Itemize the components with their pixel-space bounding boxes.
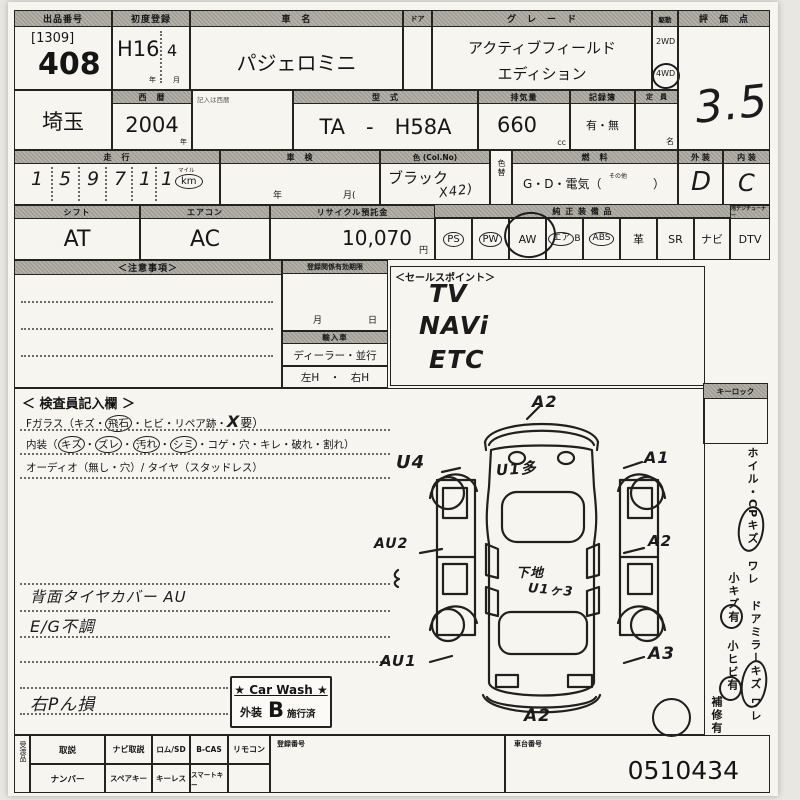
- interior-line: 内装（キズ・ズレ・汚れ・シミ・コゲ・穴・キレ・破れ・割れ）: [26, 436, 355, 453]
- dotted-line: [20, 429, 390, 431]
- digit-divider: [105, 167, 107, 201]
- ps-circled: PS: [443, 232, 463, 247]
- dotted-line: [20, 687, 228, 689]
- year-header: 西 暦: [113, 91, 191, 104]
- mileage-header: 走 行: [15, 151, 219, 164]
- grade-line1: アクティブフィールド: [433, 35, 651, 59]
- shift-cell: シフト AT: [14, 205, 140, 260]
- drive-4wd-circle-mark: [651, 62, 682, 91]
- car-wash-suffix: 施行済: [287, 706, 316, 720]
- color-value: ブラック: [388, 167, 448, 188]
- dotted-line: [20, 583, 390, 585]
- inspector-area-title: ＜ 検査員記入欄 ＞: [22, 393, 135, 412]
- first-registration-cell: 初度登録 H16 4 年 月: [112, 10, 190, 90]
- interior-item: コゲ: [208, 439, 229, 451]
- mileage-digit: 5: [59, 168, 72, 190]
- damage-annotation: A1: [644, 448, 670, 467]
- interior-item: 穴: [239, 439, 250, 451]
- interior-close: ）: [344, 439, 355, 451]
- color-code-handwritten: X42): [438, 182, 474, 202]
- dtv-label: DTV: [731, 222, 769, 256]
- shaken-header: 車 検: [221, 151, 379, 164]
- caution-cell: ＜注意事項＞: [14, 260, 282, 388]
- fuel-cell: 燃 料 G・D・電気（ その他 ）: [512, 150, 678, 205]
- car-wash-stamp: ★ Car Wash ★ 外装 B 施行済: [230, 676, 332, 728]
- score-cell: 評 価 点 3.5: [678, 10, 770, 150]
- damage-annotation: A2: [524, 706, 551, 726]
- interior-item-circled: ズレ: [94, 435, 122, 454]
- damage-annotation: U1多: [495, 457, 537, 481]
- fuel-close-paren: ）: [653, 175, 665, 192]
- color-change-cell: 色替: [490, 150, 512, 205]
- capacity-cell: 定 員 名: [635, 90, 678, 150]
- import-value: ディーラー・並行: [283, 345, 387, 365]
- dotted-line: [20, 713, 228, 715]
- interior-header: 内 装: [724, 151, 769, 164]
- mileage-digit: 7: [114, 168, 127, 190]
- mileage-digit: 1: [161, 168, 174, 190]
- damage-annotation: A3: [648, 644, 675, 664]
- mileage-digit: 1: [139, 168, 152, 190]
- sidebar-pen-circle: [720, 604, 743, 629]
- handle-value: 左H ・ 右H: [283, 367, 387, 387]
- model-code: TA - H58A: [294, 107, 477, 145]
- first-registration-month: 4: [167, 41, 177, 60]
- digit-divider: [51, 167, 53, 201]
- damage-annotation: AU1: [380, 652, 417, 670]
- year-unit: 年: [180, 137, 187, 147]
- sidebar-repair: 補修有: [708, 696, 724, 735]
- interior-item: 破れ: [292, 439, 313, 451]
- interior-prefix: 内装（: [26, 439, 58, 451]
- key-lock-header: キーロック: [704, 384, 767, 399]
- separator: ・: [160, 439, 171, 451]
- leather-label: 革: [633, 231, 644, 247]
- shaken-month-unit: 月(: [343, 188, 356, 201]
- color-header: 色 (Col.No): [381, 151, 489, 164]
- separator: ・: [313, 439, 324, 451]
- separator: ・: [250, 439, 261, 451]
- sidebar-pen-circle: [719, 676, 742, 701]
- mileage-cell: 走 行 1 5 9 7 1 1 マイル km: [14, 150, 220, 205]
- exterior-grade-cell: 外 装 D: [678, 150, 723, 205]
- exterior-header: 外 装: [679, 151, 722, 164]
- interior-item-circled: キズ: [57, 435, 85, 454]
- separator: ・: [85, 439, 96, 451]
- interior-grade-handwritten: C: [738, 169, 756, 197]
- inspector-note-2: E/G不調: [30, 613, 95, 637]
- shift-value: AT: [15, 222, 139, 256]
- dotted-line: [20, 636, 390, 638]
- day-label: 日: [368, 313, 377, 326]
- car-wash-grade: B: [268, 698, 284, 722]
- chassis-number-label: 車台番号: [514, 739, 542, 749]
- records-value: 有・無: [571, 107, 634, 143]
- separator: ・: [229, 439, 240, 451]
- displacement-unit: cc: [557, 138, 566, 147]
- glass-suffix: 要）: [240, 416, 264, 430]
- damage-annotation: U1ヶ3: [527, 577, 574, 600]
- dotted-line: [20, 477, 390, 479]
- import-cell: 輸入車 ディーラー・並行: [282, 331, 388, 366]
- damage-annotation: U4: [396, 452, 425, 473]
- interior-grade-cell: 内 装 C: [723, 150, 770, 205]
- footer-spare-key: スペアキー: [105, 764, 152, 793]
- lot-number: 408: [38, 47, 101, 82]
- handover-label-cell: 受渡品: [14, 735, 30, 793]
- airbag-b: B: [574, 234, 580, 244]
- tuner-header: 地デジチューナー: [731, 206, 769, 219]
- footer-manual: 取説: [30, 735, 105, 764]
- separator: ・: [281, 439, 292, 451]
- drive-header: 駆動: [653, 11, 677, 27]
- sales-point-navi: NAVi: [419, 311, 489, 340]
- month-unit: 月: [173, 75, 180, 85]
- grade-line2: エディション: [433, 61, 651, 85]
- fuel-other-label: その他: [609, 171, 627, 180]
- mileage-digit: 1: [31, 168, 44, 190]
- capacity-header: 定 員: [636, 91, 677, 104]
- records-header: 記録簿: [571, 91, 634, 104]
- damage-annotation: AU2: [374, 536, 408, 552]
- registration-validity-cell: 登録関係有効期限 月 日: [282, 260, 388, 331]
- grade-cell: グ レ ー ド アクティブフィールド エディション: [432, 10, 652, 90]
- shaken-year-unit: 年: [273, 188, 282, 201]
- auction-score-handwritten: 3.5: [693, 75, 771, 133]
- pw-circled: PW: [479, 232, 503, 247]
- digit-divider: [131, 167, 133, 201]
- audio-tire-line: オーディオ（無し・穴）/ タイヤ（スタッドレス）: [26, 460, 263, 475]
- inspector-note-3: 右Pん損: [30, 690, 95, 715]
- footer-keyless: キーレス: [152, 764, 190, 793]
- records-cell: 記録簿 有・無: [570, 90, 635, 150]
- recycle-value: 10,070: [342, 226, 412, 250]
- recycle-header: リサイクル預託金: [271, 206, 434, 219]
- recycle-unit: 円: [419, 243, 428, 256]
- shaken-cell: 車 検 年 月(: [220, 150, 380, 205]
- dotted-line: [21, 328, 273, 330]
- car-name: パジェロミニ: [191, 39, 402, 83]
- door-header: ドア: [404, 11, 431, 27]
- interior-item-circled: 汚れ: [132, 435, 160, 454]
- car-damage-diagram: [390, 392, 705, 737]
- aircon-value: AC: [141, 222, 269, 256]
- prefecture: 埼玉: [15, 91, 111, 151]
- footer-empty-cell: [228, 764, 270, 793]
- equip-ps: PS: [435, 218, 472, 260]
- year-entry-note: 記入は西暦: [197, 94, 230, 104]
- dotted-line: [20, 610, 390, 612]
- grade-header: グ レ ー ド: [433, 11, 651, 27]
- note-cell: 記入は西暦: [192, 90, 293, 150]
- model-header: 型 式: [294, 91, 477, 104]
- color-change-label: 色替: [496, 159, 507, 177]
- car-wash-title: ★ Car Wash ★: [232, 682, 330, 698]
- registration-number-cell: 登録番号: [270, 735, 505, 793]
- car-name-cell: 車 名 パジェロミニ: [190, 10, 403, 90]
- prefecture-cell: 埼玉: [14, 90, 112, 150]
- damage-annotation: A2: [532, 392, 558, 411]
- inspector-note-1: 背面タイヤカバー AU: [30, 586, 187, 607]
- first-registration-header: 初度登録: [113, 11, 189, 27]
- displacement-header: 排気量: [479, 91, 569, 104]
- handle-cell: 左H ・ 右H: [282, 366, 388, 388]
- sales-point-cell: ＜セールスポイント＞ TV NAVi ETC: [390, 266, 705, 386]
- sidebar-crack: ワレ: [744, 560, 760, 586]
- month-label: 月: [313, 313, 322, 326]
- auction-sheet-scan: 出品番号 [1309] 408 初度登録 H16 4 年 月 車 名 パジェロミ…: [0, 0, 800, 800]
- digit-divider: [155, 167, 157, 201]
- footer-rom-sd: ロム/SD: [152, 735, 190, 764]
- fuel-value: G・D・電気（: [523, 175, 602, 192]
- score-header: 評 価 点: [679, 11, 769, 27]
- lot-bracket: [1309]: [31, 31, 74, 46]
- navi-label: ナビ: [701, 231, 723, 247]
- footer-remote: リモコン: [228, 735, 270, 764]
- displacement-value: 660: [479, 107, 555, 143]
- aircon-cell: エアコン AC: [140, 205, 270, 260]
- caution-header: ＜注意事項＞: [15, 261, 281, 275]
- separator: ・: [197, 439, 208, 451]
- separator: ・: [122, 439, 133, 451]
- interior-item: キレ: [260, 439, 281, 451]
- model-code-cell: 型 式 TA - H58A: [293, 90, 478, 150]
- equipment-header: 純 正 装 備 品: [435, 205, 730, 218]
- equip-leather: 革: [620, 218, 657, 260]
- displacement-cell: 排気量 660 cc: [478, 90, 570, 150]
- recycle-fee-cell: リサイクル預託金 10,070 円: [270, 205, 435, 260]
- registration-validity-header: 登録関係有効期限: [283, 261, 387, 274]
- equip-abs: ABS: [583, 218, 620, 260]
- car-name-header: 車 名: [191, 11, 402, 27]
- km-unit-circled: km: [175, 174, 203, 189]
- year-cell: 西 暦 2004 年: [112, 90, 192, 150]
- year-unit: 年: [149, 75, 156, 85]
- dotted-line: [20, 453, 390, 455]
- lot-number-cell: 出品番号 [1309] 408: [14, 10, 112, 90]
- dotted-line: [21, 301, 273, 303]
- capacity-unit: 名: [666, 136, 674, 147]
- interior-item-circled: シミ: [169, 435, 197, 454]
- interior-item: 割れ: [323, 439, 344, 451]
- digit-divider: [78, 167, 80, 201]
- drive-2wd: 2WD: [656, 37, 675, 46]
- registration-number-label: 登録番号: [277, 739, 305, 749]
- exterior-grade-handwritten: D: [691, 167, 712, 197]
- footer-smart-key: スマートキー: [190, 764, 228, 793]
- door-cell: ドア: [403, 10, 432, 90]
- inspector-circle-mark: [652, 698, 691, 737]
- color-cell: 色 (Col.No) ブラック X42): [380, 150, 490, 205]
- dotted-line: [21, 355, 273, 357]
- footer-navi-manual: ナビ取説: [105, 735, 152, 764]
- chassis-number-cell: 車台番号 0510434: [505, 735, 770, 793]
- sales-point-etc: ETC: [429, 345, 484, 374]
- lot-number-header: 出品番号: [15, 11, 111, 27]
- footer-number-plate: ナンバー: [30, 764, 105, 793]
- mile-label: マイル: [178, 166, 195, 174]
- footer-bcas: B-CAS: [190, 735, 228, 764]
- chassis-number-value: 0510434: [506, 750, 739, 790]
- dtv-cell: 地デジチューナー DTV: [730, 205, 770, 260]
- key-lock-cell: キーロック: [703, 383, 768, 444]
- fuel-header: 燃 料: [513, 151, 677, 164]
- equip-sr: SR: [657, 218, 694, 260]
- divider: [160, 31, 162, 83]
- aircon-header: エアコン: [141, 206, 269, 219]
- sales-point-tv: TV: [429, 279, 467, 308]
- dotted-line: [20, 661, 390, 663]
- sr-label: SR: [668, 233, 683, 246]
- import-header: 輸入車: [283, 332, 387, 344]
- damage-annotation: A2: [648, 532, 672, 550]
- car-wash-prefix: 外装: [240, 704, 262, 720]
- handover-label: 受渡品: [18, 741, 28, 762]
- abs-circled: ABS: [589, 232, 615, 246]
- mileage-digit: 9: [87, 168, 100, 190]
- shift-header: シフト: [15, 206, 139, 219]
- drive-type-cell: 駆動 2WD 4WD: [652, 10, 678, 90]
- first-registration-year: H16: [117, 37, 160, 61]
- equip-navi: ナビ: [694, 218, 730, 260]
